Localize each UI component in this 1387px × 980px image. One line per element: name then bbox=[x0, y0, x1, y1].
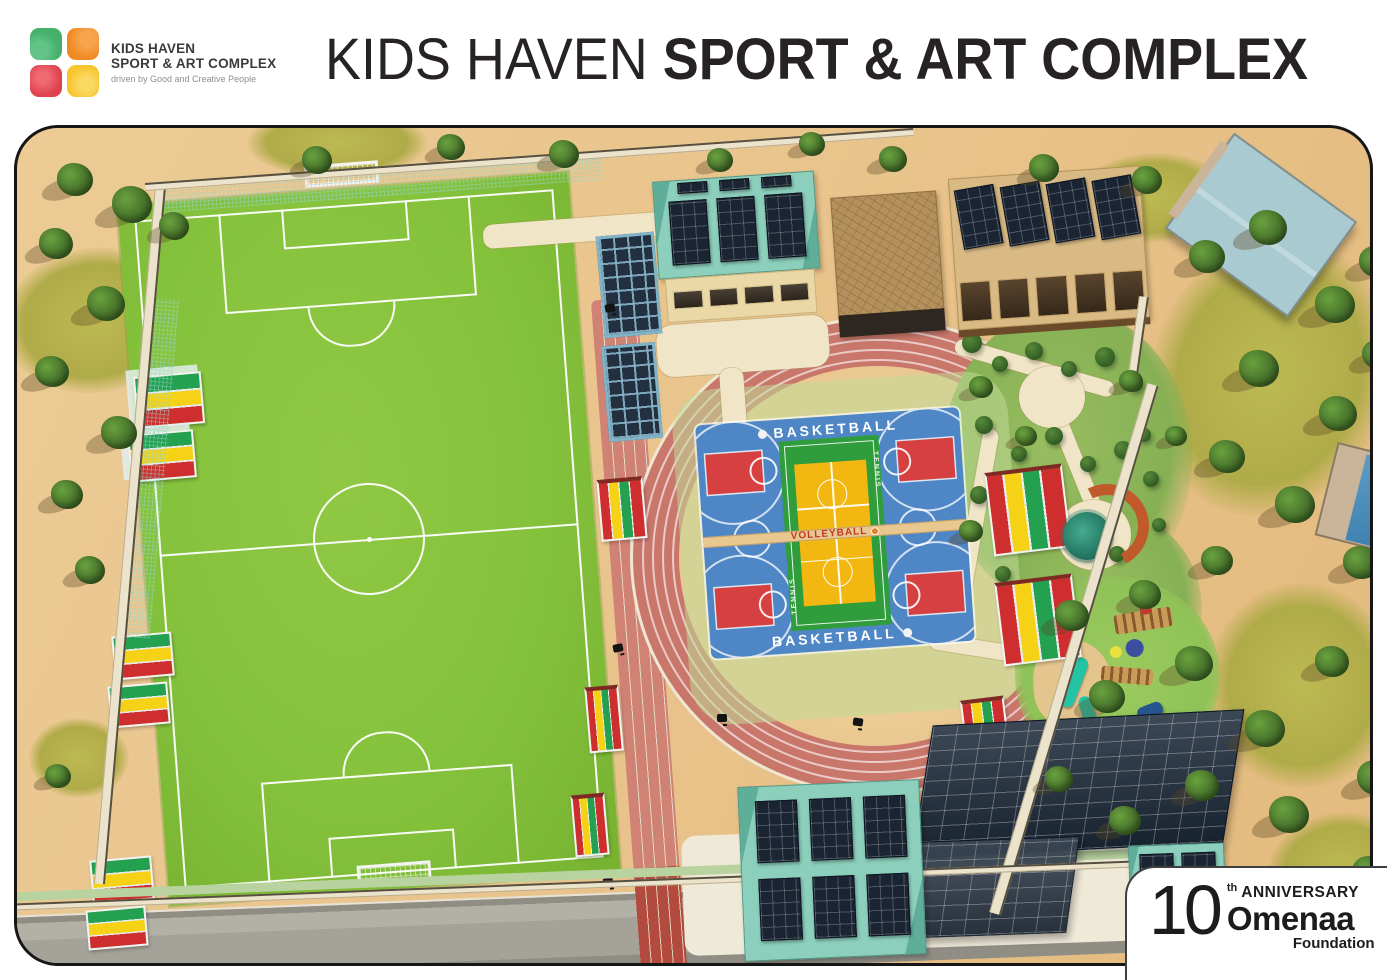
tree bbox=[51, 480, 83, 509]
tree-canopy bbox=[1249, 210, 1287, 245]
logo-art-tile-icon bbox=[30, 65, 62, 97]
logo-basketball-tile-icon bbox=[67, 28, 99, 60]
tree bbox=[57, 163, 93, 196]
solar-panel-array bbox=[755, 799, 800, 863]
logo-line2: SPORT & ART COMPLEX bbox=[111, 56, 276, 71]
floodlight bbox=[604, 303, 615, 313]
tree bbox=[879, 146, 907, 172]
shrub bbox=[1025, 342, 1043, 360]
tree bbox=[1357, 760, 1373, 795]
solar-panel-array bbox=[809, 797, 854, 861]
tree bbox=[1319, 396, 1357, 431]
tree-canopy bbox=[39, 228, 73, 259]
logo-mark: KIDS HAVEN SPORT & ART COMPLEX driven by… bbox=[30, 28, 276, 97]
tree-canopy bbox=[707, 148, 733, 172]
logo-line1: KIDS HAVEN bbox=[111, 41, 276, 56]
tree-canopy bbox=[969, 376, 993, 398]
tree bbox=[35, 356, 69, 387]
tree-canopy bbox=[1045, 766, 1073, 792]
tree-canopy bbox=[1343, 546, 1373, 579]
tree-canopy bbox=[959, 520, 983, 542]
badge-ordinal: th bbox=[1227, 882, 1237, 894]
logo-text: KIDS HAVEN SPORT & ART COMPLEX driven by… bbox=[111, 41, 276, 83]
tree-canopy bbox=[35, 356, 69, 387]
tree bbox=[707, 148, 733, 172]
badge-column: th ANNIVERSARY Omenaa Foundation bbox=[1227, 880, 1375, 951]
basketball-text-bottom: BASKETBALL bbox=[771, 625, 897, 650]
tree-canopy bbox=[1015, 426, 1037, 446]
tree-canopy bbox=[1129, 580, 1161, 609]
volleyball-ball-icon bbox=[871, 526, 880, 535]
site-render: BASKETBALL BASKETBALL bbox=[14, 125, 1373, 966]
tree-canopy bbox=[1119, 370, 1143, 392]
tree bbox=[1315, 646, 1349, 677]
tree-canopy bbox=[1209, 440, 1245, 473]
tree bbox=[1029, 154, 1059, 182]
tree bbox=[1269, 796, 1309, 833]
pavilion-building bbox=[830, 190, 946, 337]
badge-org-subtitle: Foundation bbox=[1293, 936, 1375, 951]
title-bold: SPORT & ART COMPLEX bbox=[663, 27, 1308, 92]
tree-canopy bbox=[57, 163, 93, 196]
window bbox=[708, 287, 739, 307]
tree bbox=[1109, 806, 1141, 835]
shrub bbox=[1045, 427, 1063, 445]
tree bbox=[959, 520, 983, 542]
tree-canopy bbox=[549, 140, 579, 168]
shrub bbox=[1095, 347, 1115, 367]
logo-leaf-tile-icon bbox=[30, 28, 62, 60]
bleacher-stand bbox=[584, 685, 624, 754]
tree-canopy bbox=[1055, 600, 1089, 631]
tree-canopy bbox=[1165, 426, 1187, 446]
basketball-key bbox=[897, 438, 956, 482]
sports-hall-roof bbox=[737, 779, 926, 962]
tree-canopy bbox=[1275, 486, 1315, 523]
tree bbox=[549, 140, 579, 168]
window bbox=[779, 282, 810, 302]
tree bbox=[1055, 600, 1089, 631]
play-dome bbox=[1125, 639, 1144, 658]
logo-sun-tile-icon bbox=[67, 65, 99, 97]
tree bbox=[1175, 646, 1213, 681]
tree-canopy bbox=[1185, 770, 1219, 801]
basketball-ball-icon bbox=[903, 627, 913, 637]
tree-canopy bbox=[87, 286, 125, 321]
tree bbox=[437, 134, 465, 160]
solar-panel-array bbox=[677, 181, 708, 194]
window-bay bbox=[1035, 275, 1069, 317]
clubhouse-facade bbox=[665, 269, 818, 323]
floodlight bbox=[852, 717, 863, 726]
tree-canopy bbox=[1315, 646, 1349, 677]
covered-solar-stand bbox=[596, 232, 663, 339]
bleacher-stand bbox=[984, 464, 1072, 557]
bleacher-stand bbox=[85, 905, 148, 950]
tree-canopy bbox=[112, 186, 152, 223]
multisport-court: BASKETBALL BASKETBALL bbox=[695, 407, 975, 659]
tree bbox=[1315, 286, 1355, 323]
header: KIDS HAVEN SPORT & ART COMPLEX driven by… bbox=[0, 0, 1387, 122]
tree bbox=[1209, 440, 1245, 473]
tree-canopy bbox=[1029, 154, 1059, 182]
shrub bbox=[1080, 456, 1096, 472]
tree-canopy bbox=[1189, 240, 1225, 273]
badge-row: 10 th ANNIVERSARY Omenaa Foundation bbox=[1149, 880, 1377, 951]
tree bbox=[1239, 350, 1279, 387]
solar-panel-array bbox=[863, 795, 908, 859]
tree-canopy bbox=[1245, 710, 1285, 747]
tree-canopy bbox=[879, 146, 907, 172]
tree bbox=[799, 132, 825, 156]
soccer-pitch bbox=[117, 172, 620, 906]
tree bbox=[1185, 770, 1219, 801]
tree-canopy bbox=[1319, 396, 1357, 431]
anniversary-badge: 10 th ANNIVERSARY Omenaa Foundation bbox=[1125, 866, 1387, 980]
tree bbox=[101, 416, 137, 449]
floodlight bbox=[717, 714, 727, 722]
shrub bbox=[1061, 361, 1077, 377]
tree-canopy bbox=[1109, 806, 1141, 835]
tree bbox=[1119, 370, 1143, 392]
badge-number: 10 bbox=[1149, 880, 1219, 942]
window-bay bbox=[959, 280, 993, 322]
solar-panel-array bbox=[764, 192, 806, 258]
solar-panel-array bbox=[719, 178, 750, 191]
clubhouse-building bbox=[652, 171, 824, 332]
tree bbox=[1343, 546, 1373, 579]
tree-canopy bbox=[101, 416, 137, 449]
poster-page: KIDS HAVEN SPORT & ART COMPLEX driven by… bbox=[0, 0, 1387, 980]
tree bbox=[969, 376, 993, 398]
tree-canopy bbox=[45, 764, 71, 788]
tree bbox=[75, 556, 105, 584]
window bbox=[744, 285, 775, 305]
tree bbox=[1132, 166, 1162, 194]
tree bbox=[159, 212, 189, 240]
shrub bbox=[1143, 471, 1159, 487]
tennis-label-upper: TENNIS bbox=[871, 451, 881, 489]
tree bbox=[87, 286, 125, 321]
solar-panel-array bbox=[866, 873, 911, 937]
solar-panel-array bbox=[716, 196, 758, 262]
garden-plaza bbox=[1019, 366, 1085, 428]
tree-canopy bbox=[51, 480, 83, 509]
tree-canopy bbox=[1132, 166, 1162, 194]
solar-panel-array bbox=[812, 875, 857, 939]
tree bbox=[1129, 580, 1161, 609]
clubhouse-roof bbox=[652, 171, 820, 280]
logo-tagline: driven by Good and Creative People bbox=[111, 74, 276, 84]
tree bbox=[302, 146, 332, 174]
tree-canopy bbox=[302, 146, 332, 174]
window bbox=[673, 290, 704, 310]
shrub bbox=[992, 356, 1008, 372]
tree bbox=[1045, 766, 1073, 792]
water-surface bbox=[1345, 454, 1373, 550]
tree-canopy bbox=[1201, 546, 1233, 575]
tree bbox=[1245, 710, 1285, 747]
tree bbox=[112, 186, 152, 223]
tree-canopy bbox=[159, 212, 189, 240]
tree bbox=[1362, 340, 1373, 369]
tree-canopy bbox=[1269, 796, 1309, 833]
tree bbox=[45, 764, 71, 788]
tree-canopy bbox=[1315, 286, 1355, 323]
tree bbox=[1249, 210, 1287, 245]
badge-org-name: Omenaa bbox=[1227, 902, 1375, 936]
solar-panel-array bbox=[761, 175, 792, 188]
tree-canopy bbox=[75, 556, 105, 584]
basketball-key bbox=[715, 585, 774, 629]
window-bay bbox=[1074, 272, 1108, 314]
title-space bbox=[648, 27, 663, 92]
tree-canopy bbox=[799, 132, 825, 156]
tree-canopy bbox=[1089, 680, 1125, 713]
bleacher-stand bbox=[596, 476, 647, 542]
basketball-key bbox=[906, 571, 965, 615]
tree bbox=[1015, 426, 1037, 446]
solar-panel-array bbox=[668, 199, 710, 265]
tree bbox=[1275, 486, 1315, 523]
tree-canopy bbox=[437, 134, 465, 160]
play-dome bbox=[1110, 646, 1123, 659]
basketball-key bbox=[705, 451, 764, 495]
court-circle bbox=[822, 556, 854, 588]
covered-solar-stand bbox=[601, 342, 663, 442]
tree bbox=[1359, 246, 1373, 277]
bleacher-stand bbox=[570, 793, 609, 858]
page-title: KIDS HAVEN SPORT & ART COMPLEX bbox=[325, 26, 1250, 93]
tree bbox=[1165, 426, 1187, 446]
tree bbox=[39, 228, 73, 259]
shrub bbox=[1152, 518, 1166, 532]
logo-tiles bbox=[30, 28, 99, 97]
solar-panel-array bbox=[758, 877, 803, 941]
shrub bbox=[995, 566, 1011, 582]
tree bbox=[1189, 240, 1225, 273]
title-regular: KIDS HAVEN bbox=[325, 27, 648, 92]
basketball-ball-icon bbox=[757, 429, 767, 439]
tree-canopy bbox=[1175, 646, 1213, 681]
sports-hall-building bbox=[737, 779, 926, 962]
tree-canopy bbox=[1239, 350, 1279, 387]
tree bbox=[1089, 680, 1125, 713]
window-bay bbox=[997, 278, 1031, 320]
tree bbox=[1201, 546, 1233, 575]
shrub bbox=[975, 416, 993, 434]
